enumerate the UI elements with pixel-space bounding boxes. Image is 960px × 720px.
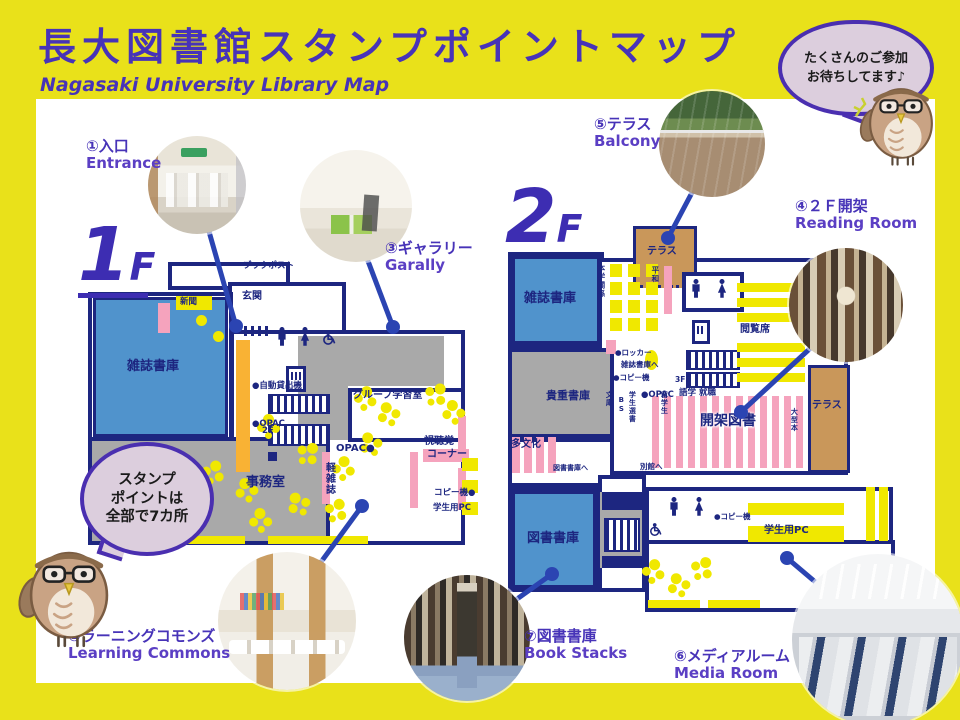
- map-block: [700, 396, 707, 468]
- map-block: [602, 492, 642, 510]
- map-block: [628, 282, 640, 295]
- f2-zasshi-shoko-label: 雑誌書庫: [524, 292, 576, 306]
- photo-media-room: [792, 554, 960, 720]
- invite-line-1: たくさんのご参加: [804, 49, 908, 69]
- map-block: [244, 326, 247, 336]
- map-block: [708, 600, 760, 608]
- map-block: [646, 300, 658, 313]
- photo-book-stacks: [404, 575, 530, 701]
- map-block: [258, 326, 261, 336]
- point-label-balcony-en: Balcony: [594, 133, 660, 150]
- photo-balcony: [659, 91, 765, 197]
- f1-zasshi-shoko-label: 雑誌書庫: [127, 360, 179, 374]
- floor-1-underline: [78, 293, 148, 298]
- stairs-1f: [268, 394, 330, 414]
- map-block: [265, 326, 268, 336]
- point-label-media-room: ⑥メディアルーム Media Room: [674, 648, 790, 683]
- map-block: [158, 303, 170, 333]
- f2-opac-label: ●OPAC: [641, 391, 674, 400]
- f2-terrace-top-label: テラス: [647, 247, 677, 258]
- map-block: [251, 326, 254, 336]
- f2-copy2-label: ●コピー機: [714, 513, 751, 521]
- f2-ogata-label: 大型本: [790, 408, 797, 432]
- f1-corner-label: コーナー: [427, 450, 467, 461]
- map-block: [646, 282, 658, 295]
- photo-reading-room: [789, 248, 903, 362]
- map-block: [737, 343, 805, 352]
- stairs-2f-center: [604, 518, 640, 552]
- f2-toshoshoko-e-label: 図書書庫へ: [553, 465, 588, 472]
- owl-mascot-bottom: [16, 532, 122, 650]
- f1-stairs2f-label: 2F: [262, 427, 274, 436]
- map-block: [610, 282, 622, 295]
- point-label-reading-room: ④２Ｆ開架 Reading Room: [795, 198, 917, 233]
- map-block: [610, 300, 622, 313]
- point-label-gallery-en: Garally: [385, 257, 473, 274]
- f2-etsuran-label: 閲覧席: [740, 325, 770, 336]
- f1-shinbun-label: 新聞: [180, 298, 197, 307]
- point-label-media-room-jp: ⑥メディアルーム: [674, 648, 790, 665]
- sparkle-icon: [854, 98, 865, 116]
- page-title: 長大図書館スタンプポイントマップ: [38, 16, 741, 71]
- map-block: [724, 396, 731, 468]
- floor-2-suffix: F: [557, 207, 583, 251]
- map-block: [748, 503, 844, 515]
- library-map-page: 長大図書館スタンプポイントマップ Nagasaki University Lib…: [0, 0, 960, 720]
- f2-sensho-label: 学生選書: [628, 391, 635, 423]
- floor-2-title: 2F: [505, 184, 582, 251]
- f2-kicho-label: 貴重書庫: [546, 390, 590, 402]
- point-label-reading-room-jp: ④２Ｆ開架: [795, 198, 917, 215]
- seat-cluster: [246, 506, 274, 534]
- f1-pc-label: 学生用PC: [433, 504, 471, 513]
- point-label-reading-room-en: Reading Room: [795, 215, 917, 232]
- point-label-gallery-jp: ③ギャラリー: [385, 240, 473, 257]
- terrace-right: [808, 365, 850, 473]
- map-block: [628, 300, 640, 313]
- f2-pc-label: 学生用PC: [764, 526, 809, 537]
- f1-genkan-label: 玄関: [242, 292, 262, 303]
- f2-terrace-right-label: テラス: [812, 401, 842, 412]
- point-label-book-stacks-en: Book Stacks: [524, 645, 627, 662]
- f2-gogaku-label: 語学 就職: [679, 389, 716, 398]
- map-block: [610, 264, 622, 277]
- point-label-balcony-jp: ⑤テラス: [594, 116, 660, 133]
- point-label-book-stacks: ⑦図書書庫 Book Stacks: [524, 628, 627, 663]
- map-block: [652, 396, 659, 468]
- map-block: [686, 372, 740, 388]
- point-label-book-stacks-jp: ⑦図書書庫: [524, 628, 627, 645]
- f2-stairs3f-label: 3F: [675, 376, 685, 384]
- f1-shichokaku-label: 視聴覚: [424, 437, 454, 448]
- map-block: [784, 396, 791, 468]
- photo-entrance: [148, 136, 246, 234]
- round-table: [213, 331, 224, 342]
- f1-copy-label: コピー機●: [434, 489, 475, 498]
- stamp-line-1: スタンプ: [118, 471, 176, 490]
- map-block: [268, 452, 277, 461]
- f1-jido-label: ●自動貸出機: [252, 382, 302, 391]
- map-block: [268, 536, 368, 544]
- seat-cluster: [438, 397, 468, 427]
- f2-kaika-label: 開架図書: [700, 414, 756, 429]
- point-label-balcony: ⑤テラス Balcony: [594, 116, 660, 151]
- page-subtitle: Nagasaki University Library Map: [40, 74, 389, 96]
- floor-2-number: 2: [505, 174, 557, 260]
- floor-1-title: 1F: [78, 222, 155, 289]
- counter-1f: [236, 340, 250, 472]
- map-block: [602, 556, 642, 568]
- floor-1-number: 1: [78, 212, 130, 298]
- round-table: [196, 315, 207, 326]
- map-block: [879, 487, 888, 541]
- point-label-entrance-en: Entrance: [86, 155, 161, 172]
- f2-locker-label: ●ロッカー: [615, 349, 652, 357]
- map-block: [628, 264, 640, 277]
- map-block: [748, 396, 755, 468]
- map-block: [866, 487, 875, 541]
- photo-learning-commons: [218, 552, 356, 690]
- f2-bunko-label: 文庫: [605, 391, 612, 407]
- owl-mascot-top: [852, 72, 944, 174]
- map-block: [796, 396, 803, 468]
- f1-keizasshi-label: 軽雑誌: [323, 462, 334, 495]
- stamp-line-3: 全部で7カ所: [106, 508, 189, 527]
- f2-zasshi-e-label: 雑誌書庫へ: [621, 361, 659, 369]
- f1-opac2-label: OPAC●: [336, 444, 375, 455]
- stairs-2f: [686, 350, 740, 370]
- map-block: [772, 396, 779, 468]
- point-label-entrance-jp: ①入口: [86, 138, 161, 155]
- map-block: [648, 600, 700, 608]
- floor-1-suffix: F: [130, 245, 156, 289]
- map-block: [676, 396, 683, 468]
- map-block: [737, 373, 805, 382]
- map-block: [646, 318, 658, 331]
- map-block: [682, 272, 744, 312]
- map-block: [712, 396, 719, 468]
- f2-tosho-shoko-label: 図書書庫: [527, 532, 579, 546]
- map-block: [688, 396, 695, 468]
- f2-bs-label: BS: [617, 396, 624, 414]
- stamp-line-2: ポイントは: [111, 490, 184, 509]
- elevator-2f: [692, 320, 710, 344]
- map-block: [664, 266, 672, 314]
- map-block: [736, 396, 743, 468]
- f2-tabunka-label: 多文化: [511, 440, 541, 451]
- map-block: [760, 396, 767, 468]
- map-block: [737, 358, 805, 367]
- f1-group-label: グループ学習室: [353, 391, 422, 402]
- map-block: [410, 452, 418, 508]
- point-label-media-room-en: Media Room: [674, 665, 790, 682]
- f2-bekkan-label: 別館へ: [640, 463, 663, 471]
- f2-copy1-label: ●コピー機: [613, 374, 650, 382]
- point-label-entrance: ①入口 Entrance: [86, 138, 161, 173]
- f2-hongaku-label: 本学関係: [597, 264, 605, 298]
- map-block: [610, 318, 622, 331]
- f2-ryugaku-label: 留学生: [660, 391, 667, 415]
- f2-heiwa-label: 平和: [651, 266, 659, 283]
- map-block: [298, 336, 444, 386]
- f1-jimushitsu-label: 事務室: [246, 476, 285, 490]
- map-block: [628, 318, 640, 331]
- point-label-gallery: ③ギャラリー Garally: [385, 240, 473, 275]
- f1-bookpost-label: ブックポスト: [243, 262, 294, 271]
